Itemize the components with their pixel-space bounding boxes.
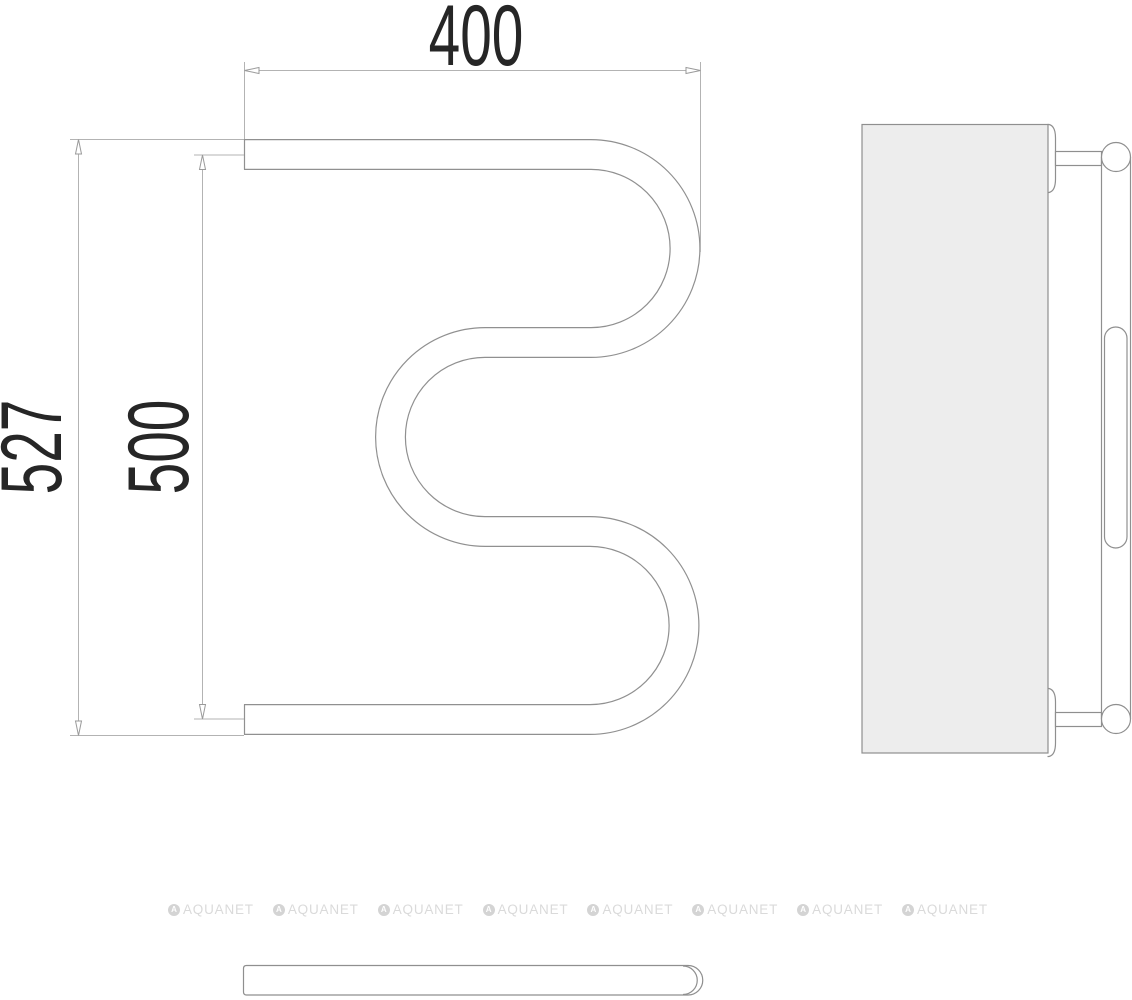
- front-view: [244, 140, 685, 735]
- watermark: A AQUANET: [483, 903, 569, 917]
- arrow-top: [200, 155, 206, 170]
- wall-panel: [862, 125, 1048, 754]
- mount-flange-top: [1102, 143, 1131, 172]
- dimension-label-400: 400: [429, 0, 524, 79]
- aquanet-logo-icon: A: [902, 904, 914, 916]
- towel-rail-tube-outline: [244, 155, 685, 720]
- technical-drawing: [0, 0, 1132, 1000]
- arrow-bottom: [76, 721, 82, 736]
- arrow-top: [76, 140, 82, 155]
- watermark-text: AQUANET: [812, 903, 883, 917]
- watermark-text: AQUANET: [183, 903, 254, 917]
- bracket-arm-top: [1056, 152, 1102, 166]
- watermark-text: AQUANET: [288, 903, 359, 917]
- tube-top-view: [244, 966, 703, 996]
- drawing-canvas: 400 527 500 A AQUANET A AQUANET A AQUANE…: [0, 0, 1132, 1000]
- wall-escutcheon-top: [1048, 125, 1056, 193]
- arrow-left: [245, 68, 260, 74]
- dimension-label-500: 500: [116, 400, 202, 495]
- watermark: A AQUANET: [797, 903, 883, 917]
- watermark: A AQUANET: [378, 903, 464, 917]
- bracket-arm-bottom: [1056, 713, 1102, 727]
- watermark-text: AQUANET: [498, 903, 569, 917]
- watermark: A AQUANET: [273, 903, 359, 917]
- aquanet-logo-icon: A: [168, 904, 180, 916]
- watermark-row: A AQUANET A AQUANET A AQUANET A AQUANET …: [168, 903, 988, 917]
- arrow-bottom: [200, 705, 206, 720]
- dimension-label-527: 527: [0, 400, 75, 495]
- aquanet-logo-icon: A: [692, 904, 704, 916]
- aquanet-logo-icon: A: [483, 904, 495, 916]
- aquanet-logo-icon: A: [797, 904, 809, 916]
- mount-flange-bottom: [1102, 705, 1131, 734]
- side-view: [862, 125, 1131, 757]
- watermark-text: AQUANET: [917, 903, 988, 917]
- arrow-right: [686, 68, 701, 74]
- wall-escutcheon-bottom: [1048, 689, 1056, 757]
- watermark: A AQUANET: [692, 903, 778, 917]
- aquanet-logo-icon: A: [587, 904, 599, 916]
- aquanet-logo-icon: A: [273, 904, 285, 916]
- watermark: A AQUANET: [587, 903, 673, 917]
- towel-rail-tube-fill: [244, 155, 685, 720]
- tube-side-inner-segment: [1105, 327, 1128, 548]
- watermark-text: AQUANET: [602, 903, 673, 917]
- watermark: A AQUANET: [902, 903, 988, 917]
- aquanet-logo-icon: A: [378, 904, 390, 916]
- watermark: A AQUANET: [168, 903, 254, 917]
- watermark-text: AQUANET: [393, 903, 464, 917]
- top-view: [244, 966, 703, 996]
- watermark-text: AQUANET: [707, 903, 778, 917]
